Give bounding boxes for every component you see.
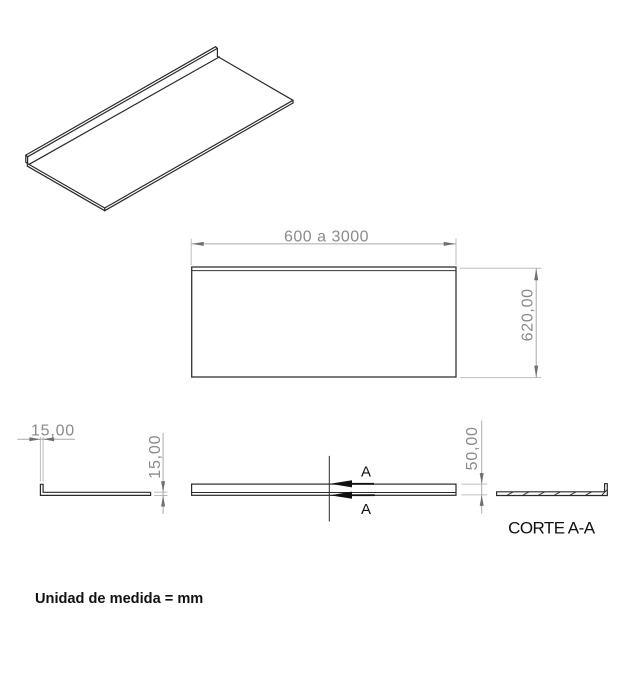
svg-text:600 a 3000: 600 a 3000: [284, 228, 369, 245]
svg-text:A: A: [361, 464, 371, 481]
svg-text:620,00: 620,00: [520, 288, 537, 341]
svg-text:15,00: 15,00: [147, 435, 164, 479]
svg-text:Unidad de medida = mm: Unidad de medida = mm: [35, 591, 203, 607]
svg-text:CORTE A-A: CORTE A-A: [508, 518, 596, 537]
svg-text:15,00: 15,00: [31, 423, 75, 440]
svg-text:A: A: [361, 501, 371, 518]
svg-text:50,00: 50,00: [464, 426, 481, 470]
